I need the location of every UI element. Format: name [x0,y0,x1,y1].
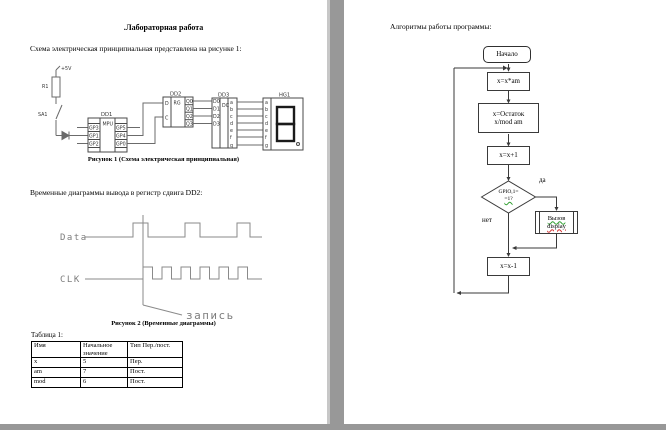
dd1-type: MPU [103,122,114,128]
diode-icon [62,132,69,140]
cell-value-x: 5 [81,358,128,368]
dd3-type: DC [222,103,230,109]
clk-signal-label: CLK [60,275,81,285]
dd2-pin-q0: Q0 [186,99,193,105]
cell-name-mod: mod [32,378,81,388]
header-name: Имя [32,342,81,358]
power-label: +5V [61,66,72,72]
dd1-pin-gp4: GP4 [116,134,126,140]
resistor-r1 [52,77,60,97]
flowchart-step-increment: x=x+1 [487,146,530,165]
timing-intro: Временные диаграммы вывода в регистр сдв… [30,188,202,197]
document-title: .Лабораторная работа [0,23,327,32]
figure1-caption: Рисунок 1 (Схема электрическая принципиа… [0,156,327,163]
document-viewer: .Лабораторная работа Схема электрическая… [0,0,666,430]
dd2-pin-q3: Q3 [186,122,193,128]
predefined-process-bar [573,212,574,233]
hg1-pin-a: a [265,101,268,106]
cell-type-x: Пер. [128,358,183,368]
step-mod-line1: x=Остаток [493,110,525,118]
cell-type-am: Пост. [128,368,183,378]
dd3-pin-d0: D0 [213,99,220,105]
switch-sa1 [56,105,62,119]
table-row: mod 6 Пост. [32,378,183,388]
sa1-label: SA1 [38,112,47,118]
predefined-process-bar [539,212,540,233]
table-row: am 7 Пост. [32,368,183,378]
intro-paragraph: Схема электрическая принципиальная предс… [30,44,242,53]
hg1-pin-f: f [265,135,267,141]
dd1-pin-gp2: GP2 [89,142,99,148]
dd1-pin-gp5: GP5 [116,126,126,132]
flowchart-step-decrement: x=x-1 [487,257,530,276]
flowchart-start: Начало [483,46,531,63]
cell-name-am: am [32,368,81,378]
dd3-pin-d3: D3 [213,122,220,128]
arrowhead [512,246,517,250]
call-line2: display [547,223,566,231]
dd3-name: DD3 [218,93,229,99]
hg1-pin-e: e [265,129,268,134]
arrowhead [457,291,462,295]
flowchart-step-multiply: x=x*am [487,72,530,91]
dd1-pin-gp0: GP0 [116,142,126,148]
hg1-pin-b: b [265,107,268,113]
figure2-caption: Рисунок 2 (Временные диаграммы) [0,320,327,327]
step-mod-line2: x/mod am [494,118,522,126]
cell-type-mod: Пост. [128,378,183,388]
data-waveform [85,223,262,237]
dd3-pin-d1: D1 [213,107,220,113]
data-signal-label: Data [60,233,88,243]
dd2-pin-q1: Q1 [186,107,193,113]
page-gap [327,0,330,424]
header-type: Тип Пер./пост. [128,342,183,358]
dd1-pin-gp3: GP3 [89,126,99,132]
r1-label: R1 [42,84,48,90]
variables-table: Имя Начальное значение Тип Пер./пост. x … [31,341,183,388]
cell-value-mod: 6 [81,378,128,388]
step-increment-label: x=x+1 [499,151,517,159]
schematic-figure: +5V R1 SA1 DD1 MPU GP3 GP1 GP2 GP5 GP4 G… [30,60,310,158]
clk-waveform [85,267,262,279]
dd1-name: DD1 [101,112,112,118]
table-row: x 5 Пер. [32,358,183,368]
flowchart-step-mod: x=Остаток x/mod am [478,103,539,133]
step-multiply-label: x=x*am [497,77,520,85]
decision-line1: GPIO,1= [498,189,518,195]
decision-line2: =1? [504,196,512,202]
table-label: Таблица 1: [31,331,63,339]
dd3-pin-c: c [230,115,233,120]
dd2-name: DD2 [170,92,181,98]
dd1-pin-gp1: GP1 [89,134,99,140]
write-callout-line [143,305,182,315]
cell-name-x: x [32,358,81,368]
step-decrement-label: x=x-1 [500,262,517,270]
branch-no-label: нет [482,216,492,224]
header-initial-value: Начальное значение [81,342,128,358]
dd3-pin-g: g [230,144,233,149]
dd3-pin-f: f [230,135,232,141]
timing-figure: Data CLK запись [30,205,290,323]
power-arrow-icon [56,66,60,70]
decision-text: GPIO,1= =1? [481,189,536,203]
dd3-pin-a: a [230,101,233,106]
page-left: .Лабораторная работа Схема электрическая… [0,0,327,424]
hg1-pin-c: c [265,115,268,120]
hg1-pin-g: g [265,144,268,149]
dd3-pin-b: b [230,107,233,113]
dd3-pin-d: d [230,121,233,127]
table-header-row: Имя Начальное значение Тип Пер./пост. [32,342,183,358]
cell-value-am: 7 [81,368,128,378]
branch-yes-label: да [539,176,546,184]
arrowhead [507,177,511,181]
hg1-pin-d: d [265,121,268,127]
dd2-pin-q2: Q2 [186,114,193,120]
dd3-pin-e: e [230,129,233,134]
dd2-pin-d: D [165,101,169,107]
flowchart-connectors [344,0,666,424]
algorithm-title: Алгоритмы работы программы: [390,22,492,31]
dd3-pin-d2: D2 [213,114,220,120]
hg1-name: HG1 [279,93,290,99]
dd2-type: RG [174,101,181,107]
call-line1: Вызов [548,215,566,223]
page-right: Алгоритмы работы программы: [344,0,666,424]
flowchart-call-display: Вызов display [535,211,578,234]
start-label: Начало [496,50,518,58]
